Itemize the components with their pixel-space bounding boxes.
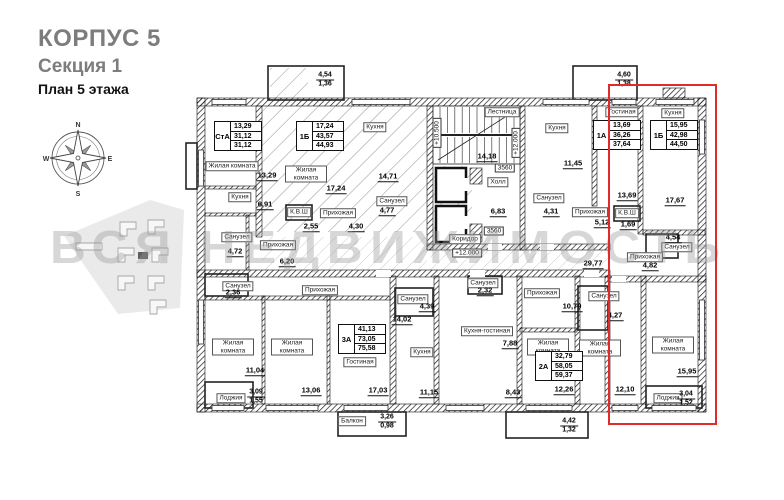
room-area-value: 15,95 — [677, 367, 698, 377]
room-label: Холл — [487, 177, 508, 187]
room-area-value: 11,04 — [245, 366, 265, 376]
room-area-value: 14,18 — [477, 152, 498, 162]
title-block: КОРПУС 5 Секция 1 План 5 этажа — [38, 26, 161, 98]
room-label: Жилая комната — [271, 339, 313, 356]
room-area-value: 4,82 — [642, 261, 659, 271]
room-area-value: 10,79 — [562, 302, 583, 312]
room-area-value: 12,26 — [554, 385, 575, 395]
balcony-area-value: 3,041,52 — [677, 391, 695, 408]
floor-title: План 5 этажа — [38, 82, 161, 97]
room-area-value: 4,27 — [607, 311, 624, 321]
room-label: Прихожая — [260, 240, 296, 250]
room-label: Санузел — [661, 242, 692, 252]
room-area-value: 5,12 — [594, 218, 611, 228]
room-label: Кухня — [363, 122, 386, 132]
apartment-tag: 1Б17,2443,5744,93 — [296, 121, 344, 151]
elevation-note: +12.000 — [452, 249, 482, 258]
balcony-area-value: 3,260,98 — [378, 414, 396, 431]
room-area-value: 17,24 — [326, 184, 347, 194]
room-label: К.В.Ш — [615, 208, 639, 218]
room-area-value: 29,77 — [583, 259, 604, 269]
room-label: Гостиная — [605, 107, 638, 117]
room-area-value: 14,02 — [392, 315, 413, 325]
room-label: Кухня — [410, 347, 433, 357]
room-area-value: 11,45 — [563, 159, 583, 169]
room-label: Кухня — [661, 108, 684, 118]
room-label: К.В.Ш — [287, 207, 311, 217]
room-label: Кухня — [545, 123, 568, 133]
room-area-value: 17,03 — [368, 386, 389, 396]
elevation-note: 3560 — [495, 164, 515, 173]
section-title: Секция 1 — [38, 57, 161, 78]
room-label: Жилая комната — [579, 340, 621, 357]
room-area-value: 1,69 — [620, 220, 637, 230]
room-area-value: 17,67 — [665, 196, 686, 206]
room-area-value: 2,32 — [477, 286, 494, 296]
apartment-tag: 1Б15,9542,9844,50 — [650, 120, 698, 150]
room-area-value: 4,39 — [419, 302, 436, 312]
room-label: Жилая комната — [206, 161, 259, 171]
room-area-value: 4,54 — [665, 233, 682, 243]
room-label: Жилая комната — [652, 337, 694, 354]
room-area-value: 2,55 — [303, 222, 320, 232]
room-label: Прихожая — [572, 207, 608, 217]
room-label: Прихожая — [524, 288, 560, 298]
room-area-value: 6,83 — [490, 207, 507, 217]
room-area-value: 4,72 — [227, 247, 244, 257]
room-label: Кухня — [228, 192, 251, 202]
room-label: Лоджия — [216, 393, 245, 403]
room-area-value: 4,77 — [379, 206, 396, 216]
room-label: Прихожая — [302, 285, 338, 295]
room-label: Лестница — [485, 107, 520, 117]
floor-plan-page: N E S W — [0, 0, 784, 500]
room-area-value: 6,91 — [257, 200, 274, 210]
apartment-tag: 1А13,6936,2637,64 — [593, 120, 641, 150]
room-label: Коридор — [449, 234, 481, 244]
room-area-value: 13,69 — [617, 191, 638, 201]
elevation-note: +12.000 — [512, 128, 521, 158]
balcony-area-value: 4,541,36 — [316, 72, 334, 89]
apartment-tag: СтА13,2931,1231,12 — [214, 121, 262, 151]
room-label: Санузел — [533, 193, 564, 203]
apartment-tag: 2А32,7958,0559,37 — [535, 351, 583, 381]
room-label: Гостиная — [343, 357, 376, 367]
room-area-value: 14,71 — [378, 172, 399, 182]
room-area-value: 13,06 — [301, 386, 322, 396]
room-label: Санузел — [221, 232, 252, 242]
room-area-value: 7,88 — [502, 339, 519, 349]
room-area-value: 2,36 — [225, 288, 242, 298]
balcony-area-value: 3,091,55 — [247, 389, 265, 406]
room-area-value: 4,31 — [543, 207, 560, 217]
room-label: Балкон — [338, 416, 366, 426]
apartment-tag: 3А41,1373,0575,58 — [338, 324, 386, 354]
room-area-value: 11,15 — [419, 388, 439, 398]
elevation-note: 3560 — [484, 227, 504, 236]
room-area-value: 12,10 — [615, 385, 636, 395]
elevation-note: +10.500 — [433, 118, 442, 148]
room-label: Жилая комната — [212, 339, 254, 356]
room-label: Санузел — [588, 291, 619, 301]
room-area-value: 6,20 — [279, 257, 296, 267]
room-area-value: 13,29 — [257, 171, 278, 181]
room-label: Жилая комната — [285, 166, 327, 183]
room-label: Кухня-гостиная — [461, 326, 513, 336]
balcony-area-value: 4,421,32 — [560, 418, 578, 435]
room-label: Прихожая — [320, 208, 356, 218]
building-title: КОРПУС 5 — [38, 26, 161, 52]
room-area-value: 4,30 — [348, 222, 365, 232]
room-area-value: 8,43 — [505, 388, 522, 398]
balcony-area-value: 4,601,38 — [615, 72, 633, 89]
